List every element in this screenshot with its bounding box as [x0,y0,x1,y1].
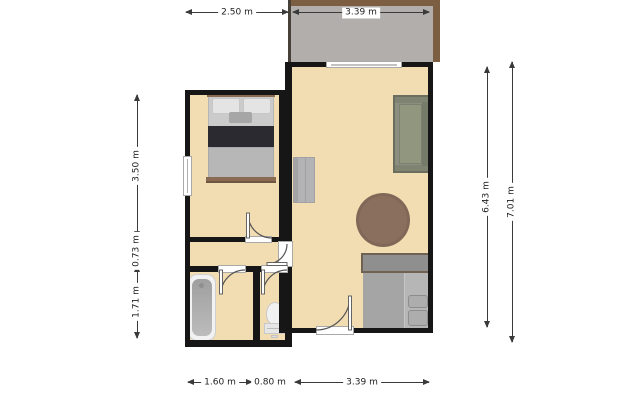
hall-door-leaf [267,263,287,266]
wc-door-arc [263,270,287,294]
dim-label-bottom-2: 0.80 m [251,378,289,389]
dim-label-left-3: 1.71 m [132,283,143,321]
bathroom-door-leaf [220,270,223,294]
dim-label-right-2: 7.01 m [507,183,518,221]
dim-label-bottom-1: 1.60 m [201,378,239,389]
bathroom-door-arc [221,270,245,294]
door-swing-layer [0,0,640,400]
entrance-door-leaf [349,296,352,330]
dim-label-bottom-3: 3.39 m [343,378,381,389]
bedroom-door-arc [248,214,272,238]
dim-label-right-1: 6.43 m [482,178,493,216]
bedroom-door-leaf [247,213,250,238]
hall-door-arc [267,244,287,264]
wc-door-leaf [262,270,265,294]
dim-label-top-2: 3.39 m [342,8,380,19]
dim-label-top-1: 2.50 m [218,8,256,19]
entrance-door-arc [316,296,350,330]
dim-label-left-2: 0.73 m [132,232,143,270]
dim-label-left-1: 3.50 m [132,147,143,185]
floor-plan: 2.50 m 3.39 m 1.60 m 0.80 m 3.39 m 3.50 … [0,0,640,400]
